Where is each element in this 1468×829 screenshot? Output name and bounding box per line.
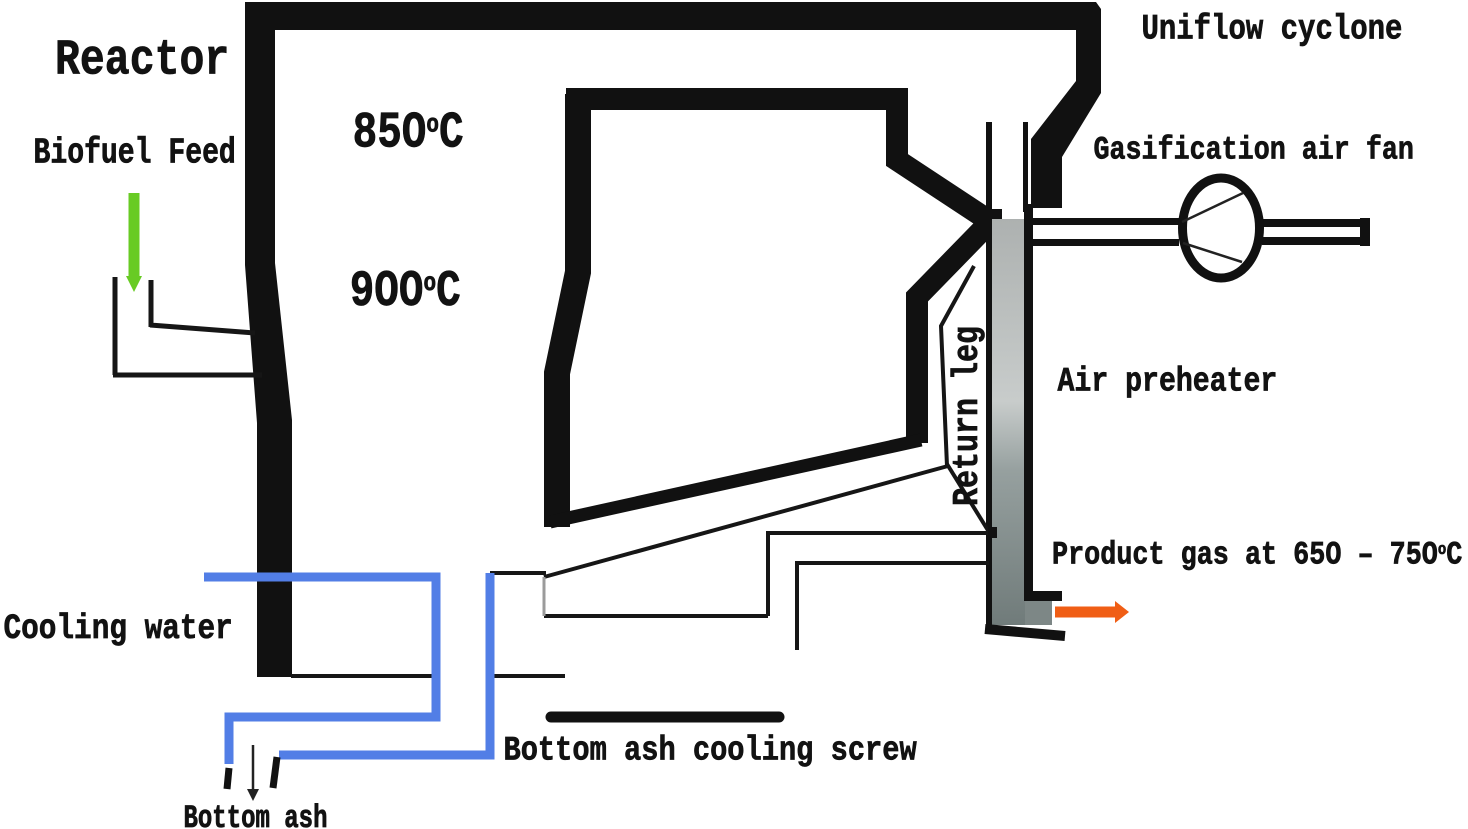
svg-text:Gasification air fan: Gasification air fan: [1094, 131, 1414, 168]
svg-text:Return leg: Return leg: [947, 326, 988, 506]
svg-text:Product gas at 65O – 75OoC: Product gas at 65O – 75OoC: [1052, 536, 1462, 573]
svg-text:9OOoC: 9OOoC: [350, 262, 461, 321]
svg-text:Reactor: Reactor: [55, 32, 229, 88]
svg-text:Cooling water: Cooling water: [4, 609, 233, 649]
svg-text:Air preheater: Air preheater: [1058, 363, 1278, 401]
svg-text:Bottom ash: Bottom ash: [184, 800, 328, 829]
svg-text:Bottom ash cooling screw: Bottom ash cooling screw: [504, 731, 917, 770]
svg-text:85OoC: 85OoC: [353, 103, 464, 162]
svg-text:Uniflow cyclone: Uniflow cyclone: [1142, 9, 1403, 49]
svg-text:Biofuel Feed: Biofuel Feed: [34, 132, 236, 173]
